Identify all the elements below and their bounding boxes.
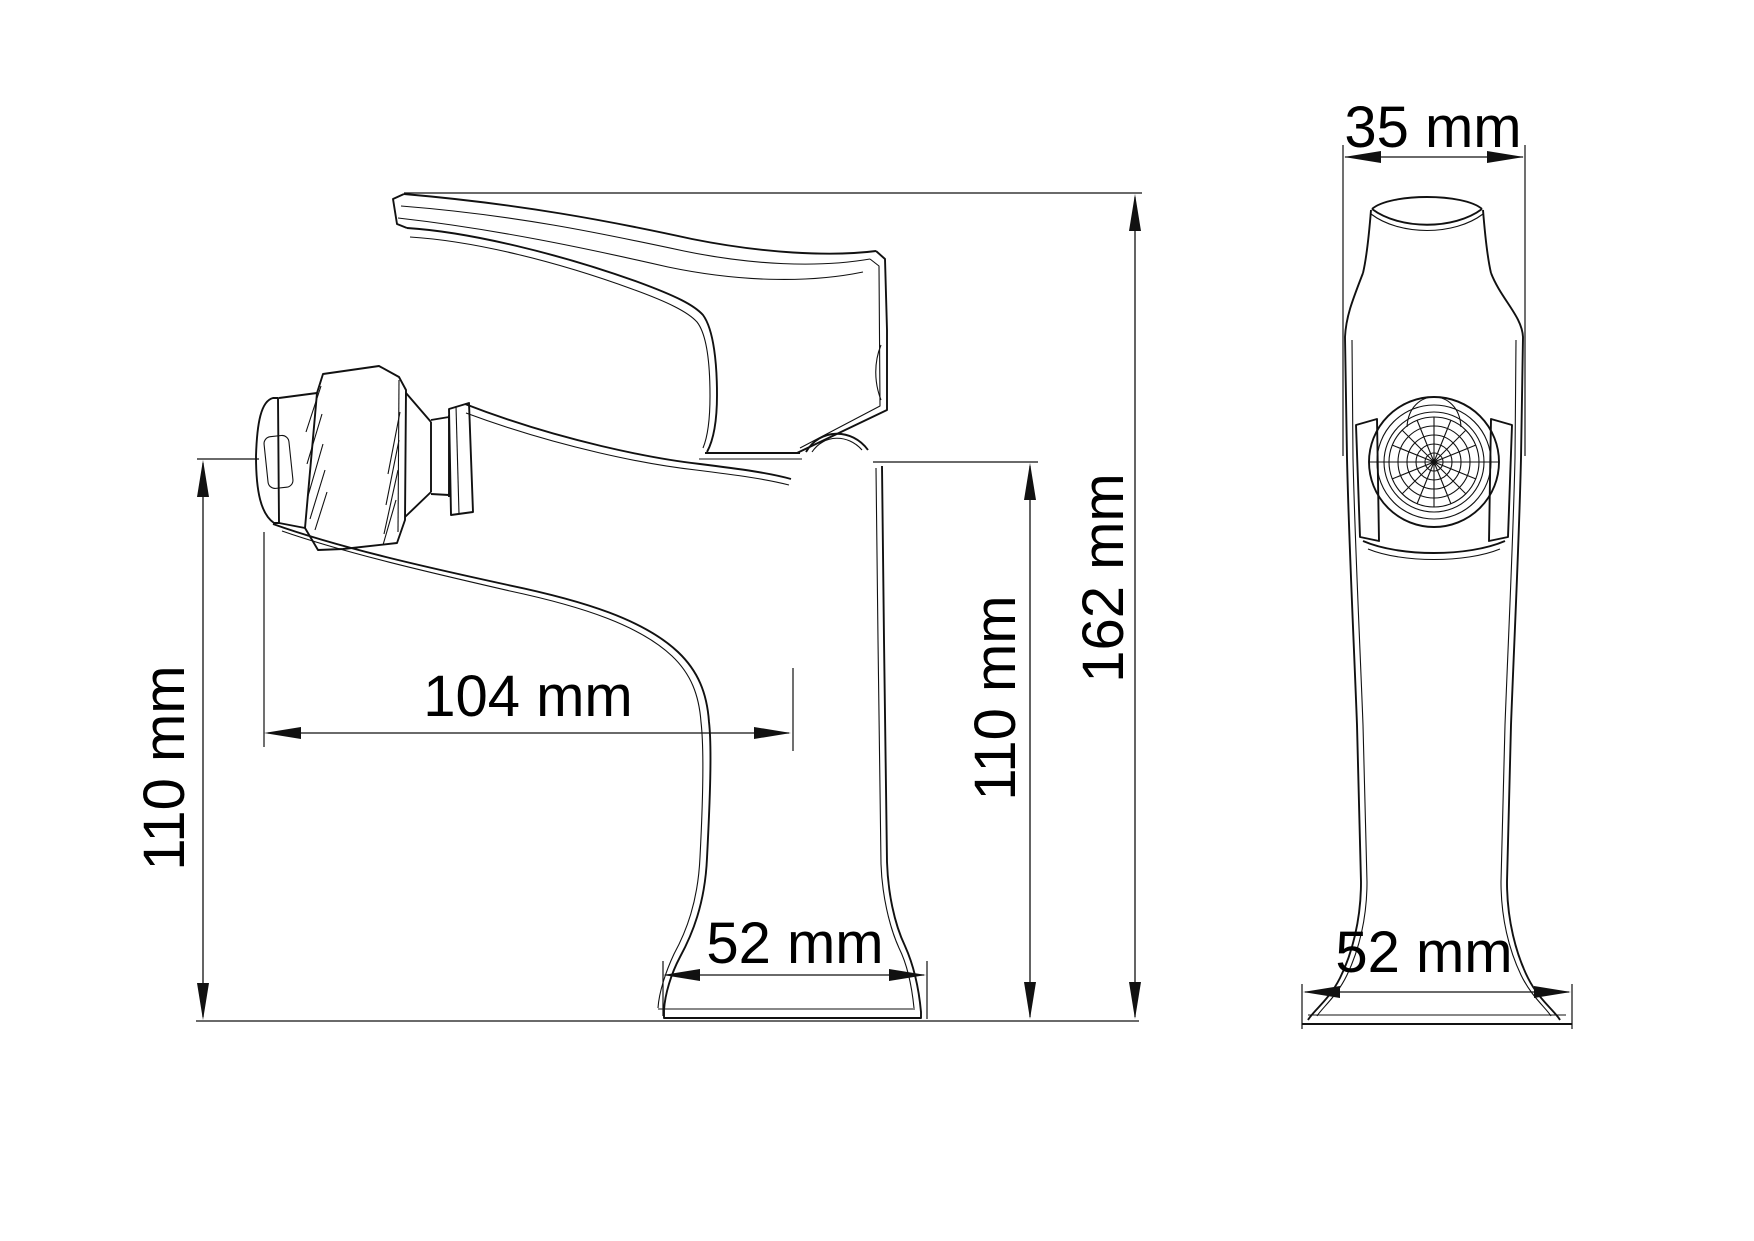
aerator-mesh — [1369, 417, 1499, 507]
aerator-bracket-right — [1489, 419, 1512, 541]
dimension-total-height: 162 mm — [404, 193, 1142, 1019]
dimension-base-width-side: 52 mm — [663, 911, 927, 1019]
handle-pivot-housing — [699, 434, 868, 459]
dimension-label-base-width-front: 52 mm — [1335, 920, 1512, 985]
dimension-label-top-width-front: 35 mm — [1344, 95, 1521, 160]
dimension-label-spout-height-left: 110 mm — [132, 665, 197, 870]
faucet-lever-handle — [393, 194, 887, 453]
knurl-hatching-right — [383, 412, 400, 545]
spout-aerator-assembly — [256, 366, 473, 550]
technical-drawing: 110 mm 104 mm 110 mm 162 mm — [0, 0, 1754, 1241]
dimension-spout-height-left: 110 mm — [132, 459, 259, 1020]
drawing-canvas: 110 mm 104 mm 110 mm 162 mm — [0, 0, 1754, 1241]
side-view: 110 mm 104 mm 110 mm 162 mm — [132, 193, 1142, 1021]
front-aerator — [1356, 397, 1512, 541]
dimension-label-base-width-side: 52 mm — [706, 911, 883, 976]
dimension-label-spout-reach: 104 mm — [423, 664, 633, 729]
dimension-body-height-right: 110 mm — [873, 462, 1038, 1019]
aerator-bracket-left — [1356, 419, 1379, 541]
front-view: 35 mm 52 mm — [1302, 95, 1572, 1029]
front-handle-knob — [1363, 197, 1491, 273]
dimension-label-total-height: 162 mm — [1071, 473, 1136, 683]
dimension-top-width-front: 35 mm — [1343, 95, 1525, 456]
dimension-spout-reach: 104 mm — [264, 532, 793, 751]
dimension-label-body-height-right: 110 mm — [963, 595, 1028, 800]
dimension-base-width-front: 52 mm — [1302, 920, 1572, 1029]
